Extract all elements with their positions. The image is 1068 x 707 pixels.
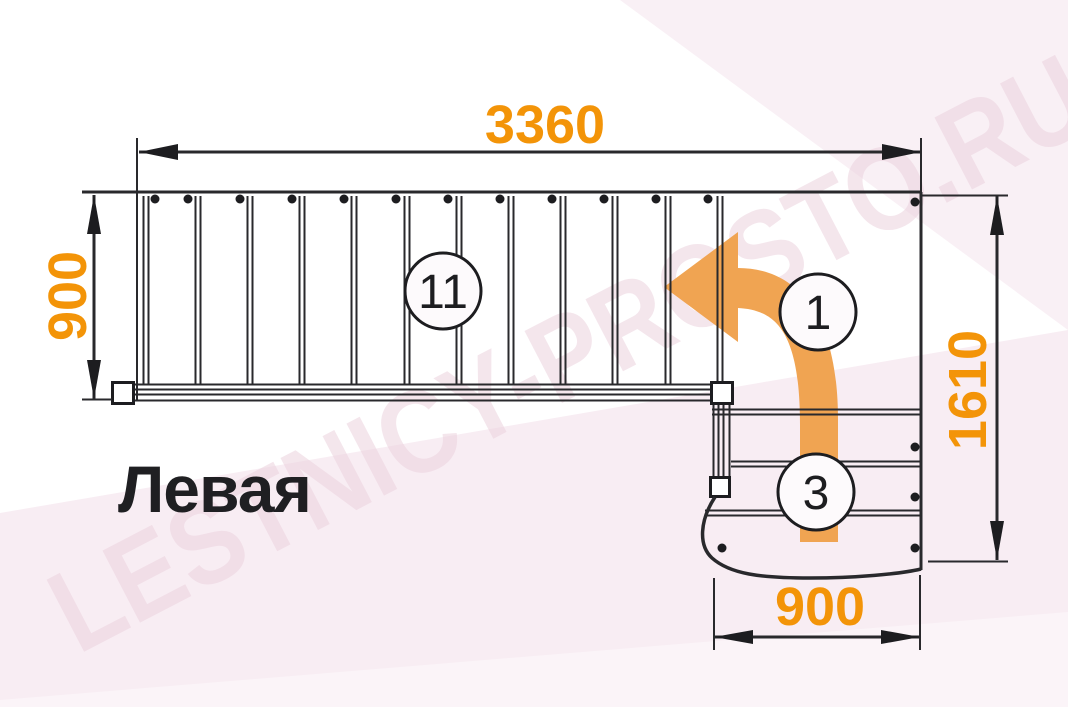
badge-value-lower: 3 [803, 467, 830, 520]
dimension-left-value: 900 [38, 251, 98, 341]
dimension-right-value: 1610 [938, 330, 998, 450]
dimension-top-value: 3360 [485, 95, 605, 155]
newel-post-lower [711, 478, 730, 497]
drawing-title: Левая [118, 452, 311, 526]
badge-value-main: 11 [418, 266, 468, 319]
badge-value-start: 1 [805, 287, 832, 340]
newel-post-corner [712, 383, 733, 404]
dimension-bottom-value: 900 [775, 577, 865, 637]
dimension-left-arrow-top [87, 195, 101, 234]
step-count-badge-lower: 3 [778, 454, 854, 530]
dimension-left: 900 [38, 195, 112, 400]
direction-badge-start: 1 [780, 274, 856, 350]
step-count-badge-main: 11 [405, 253, 481, 329]
blueprint-canvas: LESTNICY-PROSTO.RU [0, 0, 1068, 707]
newel-post-left [113, 383, 134, 404]
dimension-top-arrow-left [139, 144, 178, 160]
staircase-drawing-page: LESTNICY-PROSTO.RU [0, 0, 1068, 707]
dimension-left-arrow-bottom [87, 360, 101, 399]
